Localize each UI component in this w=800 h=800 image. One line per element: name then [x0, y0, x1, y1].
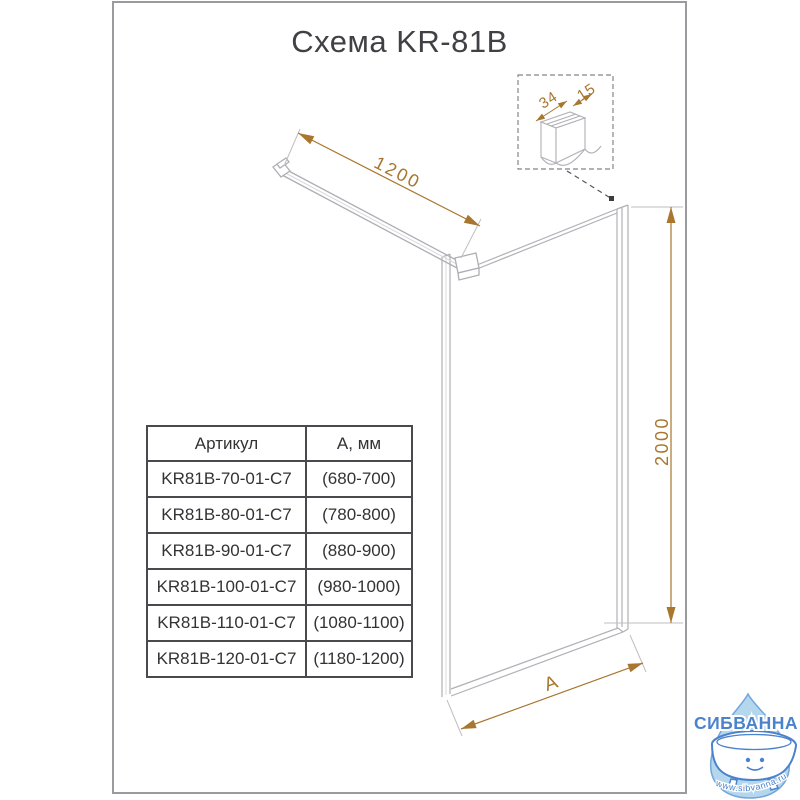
logo-brand-text: СИБВАННА: [694, 713, 798, 733]
table-row: KR81B-70-01-C7 (680-700): [147, 461, 412, 497]
cell-artikul: KR81B-120-01-C7: [147, 641, 306, 677]
cell-artikul: KR81B-90-01-C7: [147, 533, 306, 569]
table-row: KR81B-100-01-C7 (980-1000): [147, 569, 412, 605]
cell-a-range: (1080-1100): [306, 605, 412, 641]
cell-a-range: (780-800): [306, 497, 412, 533]
cell-artikul: KR81B-110-01-C7: [147, 605, 306, 641]
table-row: KR81B-80-01-C7 (780-800): [147, 497, 412, 533]
bathtub-icon: [712, 731, 796, 790]
cell-a-range: (680-700): [306, 461, 412, 497]
svg-text:www.sibvanna.ru: www.sibvanna.ru: [714, 771, 789, 794]
page-title: Схема KR-81B: [112, 24, 687, 60]
cell-a-range: (880-900): [306, 533, 412, 569]
column-header-a-mm: А, мм: [306, 426, 412, 461]
cell-artikul: KR81B-80-01-C7: [147, 497, 306, 533]
table-row: KR81B-110-01-C7 (1080-1100): [147, 605, 412, 641]
table-row: KR81B-120-01-C7 (1180-1200): [147, 641, 412, 677]
column-header-artikul: Артикул: [147, 426, 306, 461]
sibvanna-logo: СИБВАННА www.sibvanna.ru: [694, 694, 798, 798]
cell-a-range: (1180-1200): [306, 641, 412, 677]
size-table: Артикул А, мм KR81B-70-01-C7 (680-700) K…: [146, 425, 413, 678]
table-row: KR81B-90-01-C7 (880-900): [147, 533, 412, 569]
logo-site-text: www.sibvanna.ru: [714, 771, 789, 794]
water-drop-icon: [711, 694, 790, 798]
table-header-row: Артикул А, мм: [147, 426, 412, 461]
cell-a-range: (980-1000): [306, 569, 412, 605]
cell-artikul: KR81B-100-01-C7: [147, 569, 306, 605]
cell-artikul: KR81B-70-01-C7: [147, 461, 306, 497]
